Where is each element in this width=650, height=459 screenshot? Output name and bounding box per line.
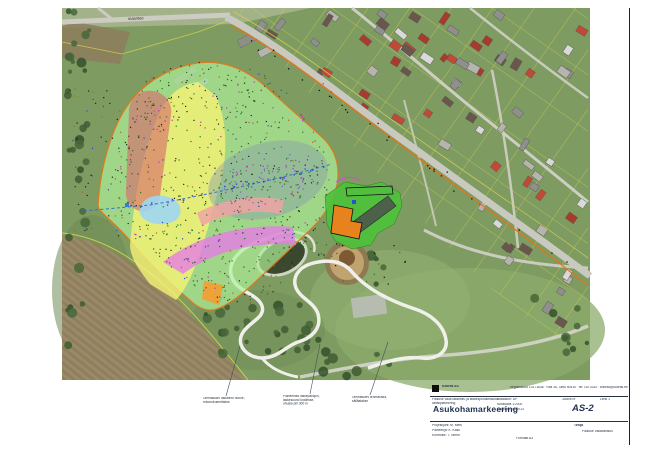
- scatter-dot: [77, 122, 78, 123]
- scatter-dot: [314, 140, 315, 141]
- scatter-dot: [220, 271, 221, 272]
- scatter-dot: [378, 263, 379, 264]
- scatter-dot: [136, 205, 137, 206]
- scatter-dot: [237, 84, 238, 85]
- scatter-dot: [243, 198, 244, 199]
- scatter-dot: [230, 171, 231, 172]
- tree: [585, 341, 589, 345]
- scatter-dot: [224, 181, 225, 182]
- titleblock-rule-bottom: [430, 421, 628, 422]
- scatter-dot: [299, 173, 300, 174]
- scatter-dot: [248, 89, 249, 90]
- scatter-dot: [427, 165, 428, 166]
- scatter-dot: [265, 78, 266, 79]
- scatter-dot: [306, 241, 307, 242]
- scatter-dot: [151, 202, 152, 203]
- scatter-dot: [167, 225, 168, 226]
- scatter-dot: [115, 215, 116, 216]
- scatter-dot: [224, 273, 225, 274]
- tree: [67, 148, 72, 153]
- scatter-dot: [283, 267, 284, 268]
- scatter-dot: [193, 120, 194, 121]
- scatter-dot: [180, 195, 181, 196]
- scatter-dot: [404, 262, 405, 263]
- scatter-dot: [132, 221, 133, 222]
- scatter-dot: [241, 146, 242, 147]
- scatter-dot: [203, 260, 204, 261]
- scatter-dot: [258, 256, 259, 257]
- scatter-dot: [186, 87, 187, 88]
- scatter-dot: [199, 75, 200, 76]
- tree: [218, 349, 227, 358]
- scatter-dot: [153, 248, 154, 249]
- scatter-dot: [265, 203, 266, 204]
- scatter-dot: [238, 91, 239, 92]
- scatter-dot: [148, 101, 149, 102]
- scatter-dot: [137, 108, 138, 109]
- scatter-dot: [290, 160, 291, 161]
- scatter-dot: [177, 225, 178, 226]
- scatter-dot: [187, 186, 188, 187]
- scatter-dot: [230, 201, 231, 202]
- scatter-dot: [299, 211, 300, 212]
- scatter-dot: [214, 93, 215, 94]
- scatter-dot: [137, 173, 138, 174]
- scatter-dot: [366, 281, 367, 282]
- scatter-dot: [288, 230, 289, 231]
- tree: [275, 307, 284, 316]
- scatter-dot: [240, 113, 241, 114]
- scatter-dot: [148, 98, 149, 99]
- scatter-dot: [180, 248, 181, 249]
- scatter-dot: [225, 263, 226, 264]
- scatter-dot: [447, 172, 448, 173]
- scatter-dot: [263, 275, 264, 276]
- scatter-dot: [147, 113, 148, 114]
- scatter-dot: [161, 126, 162, 127]
- scatter-dot: [72, 140, 73, 141]
- scatter-dot: [186, 72, 187, 73]
- tree: [374, 281, 379, 286]
- company-name-text: Kobras AS: [442, 385, 459, 388]
- scatter-dot: [231, 163, 232, 164]
- scatter-dot: [262, 179, 263, 180]
- scatter-dot: [288, 120, 289, 121]
- scatter-dot: [225, 290, 226, 291]
- scatter-dot: [85, 186, 86, 187]
- scatter-dot: [147, 146, 148, 147]
- scatter-dot: [160, 249, 161, 250]
- scatter-dot: [237, 111, 238, 112]
- tree: [80, 218, 90, 228]
- scatter-dot: [205, 258, 206, 259]
- scatter-dot: [131, 154, 132, 155]
- scatter-dot: [159, 253, 160, 254]
- scatter-dot: [204, 261, 205, 262]
- scatter-dot: [217, 204, 218, 205]
- scatter-dot: [255, 189, 256, 190]
- scatter-dot: [190, 97, 191, 98]
- scatter-dot: [218, 187, 219, 188]
- scatter-dot: [231, 203, 232, 204]
- scatter-dot: [164, 231, 165, 232]
- scatter-dot: [205, 105, 206, 106]
- scatter-dot: [296, 171, 297, 172]
- scatter-dot: [200, 257, 201, 258]
- company-name: Kobras AS: [442, 385, 459, 389]
- scatter-dot: [313, 181, 314, 182]
- scatter-dot: [171, 97, 172, 98]
- scatter-dot: [261, 172, 262, 173]
- scatter-dot: [226, 179, 227, 180]
- zone-blue-blob: [140, 196, 181, 225]
- scatter-dot: [292, 194, 293, 195]
- tree: [64, 91, 72, 99]
- scatter-dot: [213, 96, 214, 97]
- scatter-dot: [112, 138, 113, 139]
- scatter-dot: [249, 199, 250, 200]
- scatter-dot: [186, 82, 187, 83]
- scatter-dot: [261, 189, 262, 190]
- scatter-dot: [140, 207, 141, 208]
- scatter-dot: [233, 134, 234, 135]
- scatter-dot: [178, 117, 179, 118]
- scatter-dot: [192, 195, 193, 196]
- scatter-dot: [293, 226, 294, 227]
- scatter-dot: [152, 105, 153, 106]
- scatter-dot: [237, 103, 238, 104]
- scatter-dot: [217, 301, 218, 302]
- scatter-dot: [310, 170, 311, 171]
- scatter-dot: [254, 82, 255, 83]
- scatter-dot: [287, 219, 288, 220]
- tree: [574, 323, 581, 330]
- scatter-dot: [224, 285, 225, 286]
- scatter-dot: [223, 127, 224, 128]
- tree: [315, 337, 321, 343]
- note-callout-b: Planeeritav laskepaviljon, laskesuund lo…: [283, 395, 320, 406]
- scatter-dot: [140, 229, 141, 230]
- scatter-dot: [261, 292, 262, 293]
- scatter-dot: [263, 186, 264, 187]
- scatter-dot: [239, 151, 240, 152]
- scatter-dot: [264, 170, 265, 171]
- scatter-dot: [246, 170, 247, 171]
- scatter-dot: [281, 221, 282, 222]
- scatter-dot: [168, 82, 169, 83]
- scatter-dot: [78, 183, 79, 184]
- scatter-dot: [184, 170, 185, 171]
- scatter-dot: [218, 139, 219, 140]
- scatter-dot: [434, 169, 435, 170]
- scatter-dot: [166, 233, 167, 234]
- scatter-dot: [197, 241, 198, 242]
- scatter-dot: [183, 199, 184, 200]
- scatter-dot: [74, 95, 75, 96]
- scatter-dot: [141, 206, 142, 207]
- scatter-dot: [242, 159, 243, 160]
- tree: [248, 304, 256, 312]
- scatter-dot: [317, 150, 318, 151]
- scatter-dot: [220, 151, 221, 152]
- scatter-dot: [216, 229, 217, 230]
- tree: [301, 325, 311, 335]
- scatter-dot: [149, 178, 150, 179]
- scatter-dot: [214, 288, 215, 289]
- scatter-dot: [231, 151, 232, 152]
- drawing-number: AS-2: [572, 403, 594, 414]
- scatter-dot: [231, 80, 232, 81]
- scatter-dot: [142, 91, 143, 92]
- scatter-dot: [203, 166, 204, 167]
- scatter-dot: [292, 234, 293, 235]
- scatter-dot: [182, 103, 183, 104]
- scatter-dot: [326, 189, 327, 190]
- scatter-dot: [321, 253, 322, 254]
- tree: [321, 347, 331, 357]
- scatter-dot: [286, 181, 287, 182]
- scatter-dot: [237, 210, 238, 211]
- scatter-dot: [77, 138, 78, 139]
- scatter-dot: [121, 211, 122, 212]
- scatter-dot: [166, 190, 167, 191]
- scatter-dot: [292, 266, 293, 267]
- scatter-dot: [287, 157, 288, 158]
- scatter-dot: [171, 266, 172, 267]
- scatter-dot: [194, 93, 195, 94]
- scatter-dot: [384, 277, 385, 278]
- map-canvas: maantee: [0, 0, 650, 459]
- scatter-dot: [180, 66, 181, 67]
- scatter-dot: [303, 243, 304, 244]
- scatter-dot: [232, 293, 233, 294]
- scatter-dot: [268, 291, 269, 292]
- scatter-dot: [317, 182, 318, 183]
- scatter-dot: [328, 179, 329, 180]
- scatter-dot: [86, 110, 87, 111]
- scatter-dot: [278, 167, 279, 168]
- scatter-dot: [282, 225, 283, 226]
- scatter-dot: [305, 183, 306, 184]
- scatter-dot: [174, 105, 175, 106]
- scatter-dot: [324, 257, 325, 258]
- scatter-dot: [227, 79, 228, 80]
- scatter-dot: [294, 174, 295, 175]
- scatter-dot: [284, 237, 285, 238]
- scatter-dot: [138, 137, 139, 138]
- scatter-dot: [118, 235, 119, 236]
- scatter-dot: [235, 116, 236, 117]
- scatter-dot: [203, 73, 204, 74]
- scatter-dot: [217, 230, 218, 231]
- scatter-dot: [279, 169, 280, 170]
- note-callout-c: Olemasolev terviserada, säilitatakse: [352, 396, 387, 404]
- scatter-dot: [197, 280, 198, 281]
- scatter-dot: [216, 107, 217, 108]
- scatter-dot: [269, 285, 270, 286]
- scatter-dot: [164, 120, 165, 121]
- scatter-dot: [218, 124, 219, 125]
- scatter-dot: [225, 85, 226, 86]
- scatter-dot: [279, 252, 280, 253]
- scatter-dot: [134, 234, 135, 235]
- scatter-dot: [282, 117, 283, 118]
- scatter-dot: [151, 107, 152, 108]
- scatter-dot: [171, 187, 172, 188]
- scatter-dot: [229, 183, 230, 184]
- scatter-dot: [258, 74, 259, 75]
- scatter-dot: [169, 173, 170, 174]
- scatter-dot: [176, 126, 177, 127]
- scatter-dot: [281, 147, 282, 148]
- scatter-dot: [95, 103, 96, 104]
- scatter-dot: [318, 254, 319, 255]
- scatter-dot: [205, 127, 206, 128]
- scatter-dot: [302, 116, 303, 117]
- scatter-dot: [258, 153, 259, 154]
- scatter-dot: [278, 171, 279, 172]
- scatter-dot: [239, 206, 240, 207]
- scatter-dot: [222, 213, 223, 214]
- scatter-dot: [228, 130, 229, 131]
- tree: [75, 140, 84, 149]
- scatter-dot: [129, 164, 130, 165]
- scatter-dot: [254, 268, 255, 269]
- scatter-dot: [274, 177, 275, 178]
- scatter-dot: [108, 189, 109, 190]
- scatter-dot: [292, 191, 293, 192]
- scatter-dot: [433, 171, 434, 172]
- scatter-dot: [214, 173, 215, 174]
- scatter-dot: [236, 175, 237, 176]
- scatter-dot: [195, 275, 196, 276]
- scatter-dot: [289, 154, 290, 155]
- tree: [273, 330, 278, 335]
- scatter-dot: [200, 136, 201, 137]
- scatter-dot: [299, 197, 300, 198]
- scatter-dot: [125, 176, 126, 177]
- scatter-dot: [282, 216, 283, 217]
- scatter-dot: [221, 196, 222, 197]
- scatter-dot: [326, 169, 327, 170]
- scatter-dot: [335, 265, 336, 266]
- scatter-dot: [254, 101, 255, 102]
- scatter-dot: [299, 161, 300, 162]
- scatter-dot: [76, 139, 77, 140]
- scatter-dot: [215, 284, 216, 285]
- scatter-dot: [263, 290, 264, 291]
- scatter-dot: [226, 275, 227, 276]
- tree: [265, 348, 272, 355]
- scatter-dot: [225, 118, 226, 119]
- scatter-dot: [170, 98, 171, 99]
- scatter-dot: [224, 297, 225, 298]
- tree: [303, 344, 310, 351]
- scatter-dot: [291, 253, 292, 254]
- scatter-dot: [323, 207, 324, 208]
- scatter-dot: [302, 79, 303, 80]
- scatter-dot: [347, 112, 348, 113]
- tree: [244, 340, 249, 345]
- scatter-dot: [103, 97, 104, 98]
- scatter-dot: [262, 201, 263, 202]
- scatter-dot: [339, 245, 340, 246]
- scatter-dot: [206, 214, 207, 215]
- scatter-dot: [267, 260, 268, 261]
- scatter-dot: [166, 261, 167, 262]
- scatter-dot: [242, 226, 243, 227]
- tree: [84, 121, 91, 128]
- scatter-dot: [183, 184, 184, 185]
- scatter-dot: [236, 139, 237, 140]
- scatter-dot: [378, 259, 379, 260]
- scatter-dot: [176, 238, 177, 239]
- scatter-dot: [304, 241, 305, 242]
- scatter-dot: [229, 261, 230, 262]
- scatter-dot: [259, 177, 260, 178]
- scatter-dot: [208, 245, 209, 246]
- scatter-dot: [132, 150, 133, 151]
- scatter-dot: [144, 138, 145, 139]
- scatter-dot: [386, 140, 387, 141]
- scatter-dot: [317, 183, 318, 184]
- scatter-dot: [153, 186, 154, 187]
- scatter-dot: [119, 110, 120, 111]
- scatter-dot: [283, 247, 284, 248]
- scatter-dot: [259, 259, 260, 260]
- scatter-dot: [294, 233, 295, 234]
- scatter-dot: [230, 250, 231, 251]
- scatter-dot: [238, 219, 239, 220]
- scatter-dot: [248, 183, 249, 184]
- scatter-dot: [237, 173, 238, 174]
- scatter-dot: [224, 189, 225, 190]
- scatter-dot: [378, 123, 379, 124]
- scatter-dot: [164, 175, 165, 176]
- scatter-dot: [236, 183, 237, 184]
- scatter-dot: [213, 235, 214, 236]
- sightline-marker: [125, 203, 129, 207]
- scatter-dot: [145, 119, 146, 120]
- scatter-dot: [182, 238, 183, 239]
- scatter-dot: [317, 171, 318, 172]
- scatter-dot: [224, 186, 225, 187]
- scatter-dot: [228, 283, 229, 284]
- scatter-dot: [202, 197, 203, 198]
- scatter-dot: [241, 181, 242, 182]
- scatter-dot: [313, 230, 314, 231]
- scatter-dot: [305, 168, 306, 169]
- scatter-dot: [101, 137, 102, 138]
- scatter-dot: [175, 158, 176, 159]
- scatter-dot: [298, 188, 299, 189]
- scatter-dot: [109, 103, 110, 104]
- scatter-dot: [127, 188, 128, 189]
- scatter-dot: [234, 201, 235, 202]
- scatter-dot: [162, 222, 163, 223]
- scatter-dot: [152, 78, 153, 79]
- scatter-dot: [194, 213, 195, 214]
- scatter-dot: [303, 118, 304, 119]
- scatter-dot: [137, 116, 138, 117]
- scatter-dot: [167, 99, 168, 100]
- scatter-dot: [206, 107, 207, 108]
- scatter-dot: [216, 96, 217, 97]
- scatter-dot: [250, 299, 251, 300]
- scatter-dot: [315, 219, 316, 220]
- scatter-dot: [319, 90, 320, 91]
- scatter-dot: [209, 165, 210, 166]
